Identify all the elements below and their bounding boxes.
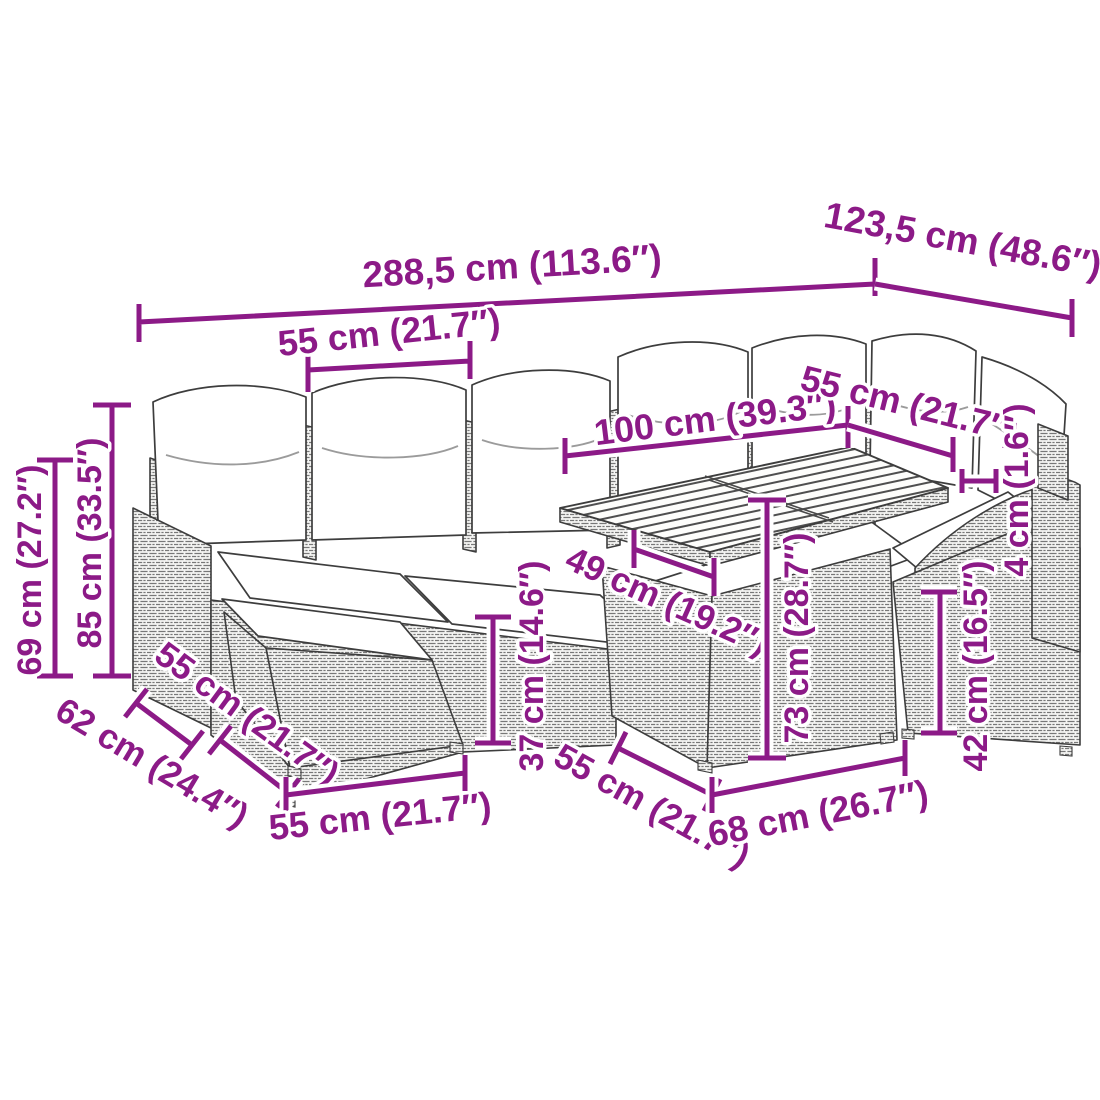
dim-label-total-width: 288,5 cm (113.6″)	[361, 237, 662, 296]
dim-label-arm-height: 69 cm (27.2″)	[11, 465, 49, 676]
base-foot	[902, 729, 914, 739]
dim-label-total-depth: 123,5 cm (48.6″)	[821, 194, 1100, 286]
right-armrest	[1032, 478, 1080, 652]
furniture-dimension-diagram: 288,5 cm (113.6″) 123,5 cm (48.6″) 55 cm…	[0, 0, 1100, 1100]
right-arm-post	[1038, 424, 1068, 500]
dim-label-right-seat-height: 42 cm (16.5″)	[957, 561, 995, 772]
dim-label-total-height: 85 cm (33.5″)	[71, 438, 109, 649]
dim-label-tabletop-thickness: 4 cm (1.6″)	[998, 403, 1036, 576]
dim-total-depth: 123,5 cm (48.6″)	[821, 194, 1100, 337]
dim-arm-height: 69 cm (27.2″)	[11, 460, 73, 676]
dim-label-seat-height: 37 cm (14.6″)	[513, 561, 551, 772]
dim-total-width: 288,5 cm (113.6″)	[139, 237, 875, 342]
dim-total-height: 85 cm (33.5″)	[71, 405, 131, 676]
dim-label-table-height: 73 cm (28.7″)	[778, 533, 816, 744]
ottoman-foot	[450, 742, 463, 754]
table-foot	[880, 732, 894, 744]
back-cushion	[312, 378, 466, 540]
base-foot	[1060, 746, 1072, 756]
